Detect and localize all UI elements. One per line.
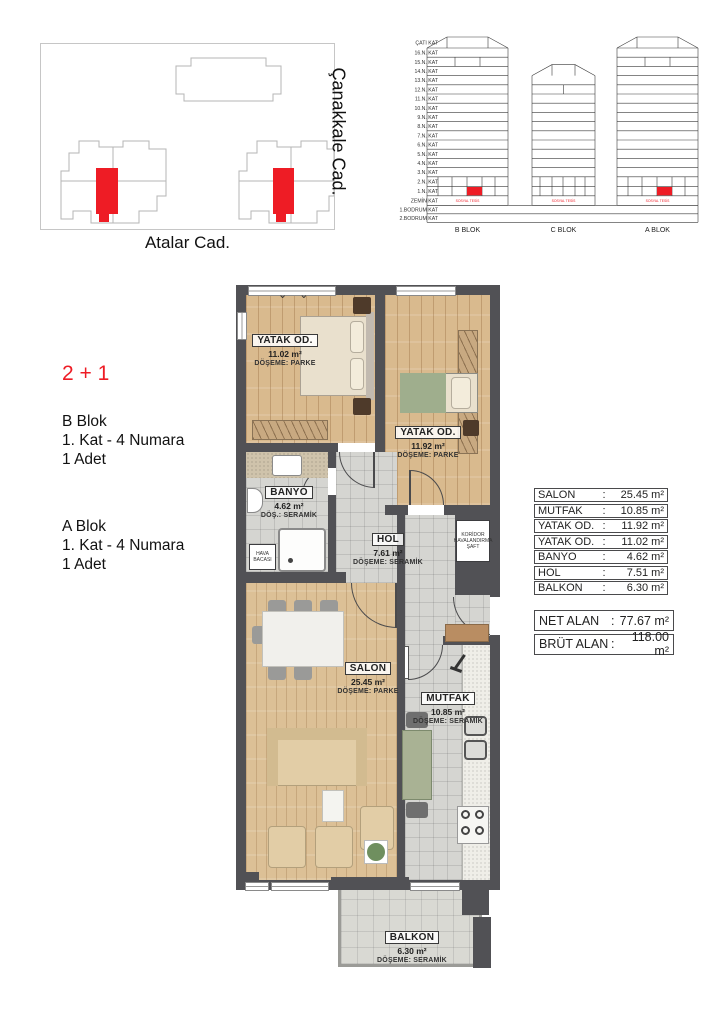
area-row-value: 25.45 m²	[608, 489, 664, 501]
room-label-bedroom2: YATAK OD. 11.92 m² DÖŞEME: PARKE	[383, 426, 473, 459]
area-row-value: 11.92 m²	[608, 520, 664, 532]
area-row-colon: :	[611, 614, 619, 628]
balcony-wall-piece	[473, 917, 491, 968]
area-totals-table: NET ALAN:77.67 m²BRÜT ALAN:118.00 m²	[534, 610, 674, 657]
area-row-value: 10.85 m²	[608, 505, 664, 517]
kitchen-cabinet	[445, 624, 489, 642]
kitchen-sink	[464, 740, 487, 760]
shower-drain	[288, 558, 293, 563]
kitchen-table	[402, 730, 432, 800]
room-label-bedroom1: YATAK OD. 11.02 m² DÖŞEME: PARKE	[240, 334, 330, 367]
area-table-row: HOL:7.51 m²	[534, 566, 668, 580]
wall-bathroom-livingroom	[236, 572, 346, 583]
floorplan-sheet: Atalar Cad. Çanakkale Cad. ÇATI KAT16.N.…	[0, 0, 724, 1024]
sofa-armrest	[356, 728, 367, 786]
area-row-colon: :	[600, 536, 608, 548]
sofa-armrest	[267, 728, 278, 786]
area-row-value: 6.30 m²	[608, 582, 664, 594]
pillow	[350, 321, 364, 353]
area-row-label: BANYO	[538, 551, 600, 563]
wall-right	[490, 285, 500, 890]
area-row-value: 7.51 m²	[608, 567, 664, 579]
area-row-colon: :	[600, 582, 608, 594]
wall-bedroom2-bottom	[444, 505, 490, 515]
area-table-row: BANYO:4.62 m²	[534, 550, 668, 564]
dining-chair	[268, 665, 286, 680]
area-row-colon: :	[600, 489, 608, 501]
plant-leaves	[367, 843, 385, 861]
wall-left	[236, 285, 246, 890]
area-row-label: NET ALAN	[539, 614, 611, 628]
air-shaft: HAVA BACASI	[249, 544, 276, 570]
dining-chair	[294, 665, 312, 680]
area-table-row: BRÜT ALAN:118.00 m²	[534, 634, 674, 655]
stove-burner	[475, 826, 484, 835]
area-table: SALON:25.45 m²MUTFAK:10.85 m²YATAK OD.:1…	[534, 488, 668, 597]
area-row-colon: :	[611, 637, 619, 651]
kitchen-chair	[406, 802, 428, 818]
room-label-livingroom: SALON 25.45 m² DÖŞEME: PARKE	[322, 662, 414, 695]
area-row-colon: :	[600, 520, 608, 532]
dining-table	[262, 611, 344, 667]
area-row-label: YATAK OD.	[538, 536, 600, 548]
bed-blanket	[400, 373, 446, 413]
area-table-row: SALON:25.45 m²	[534, 488, 668, 502]
area-table-row: BALKON:6.30 m²	[534, 581, 668, 595]
nightstand	[353, 297, 371, 314]
area-row-colon: :	[600, 505, 608, 517]
kitchen-counter	[462, 645, 490, 880]
area-row-label: MUTFAK	[538, 505, 600, 517]
stove-burner	[475, 810, 484, 819]
area-row-value: 118.00 m²	[619, 630, 669, 658]
wall-bathroom-right	[328, 495, 336, 583]
room-label-bathroom: BANYO 4.62 m² DÖŞ.: SERAMİK	[249, 486, 329, 519]
door-leaf	[409, 470, 411, 505]
balcony-door-window	[410, 882, 460, 891]
stove-burner	[461, 826, 470, 835]
wall-bedroom1-bottom	[246, 443, 338, 452]
stove-burner	[461, 810, 470, 819]
area-row-label: YATAK OD.	[538, 520, 600, 532]
entry-door-opening	[490, 597, 500, 635]
nightstand	[353, 398, 371, 415]
area-table-row: NET ALAN:77.67 m²	[534, 610, 674, 631]
area-row-value: 77.67 m²	[619, 614, 669, 628]
wall-bathroom-right	[328, 452, 336, 468]
area-table-row: YATAK OD.:11.02 m²	[534, 535, 668, 549]
area-row-colon: :	[600, 567, 608, 579]
area-row-label: BRÜT ALAN	[539, 637, 611, 651]
area-row-value: 11.02 m²	[608, 536, 664, 548]
area-row-value: 4.62 m²	[608, 551, 664, 563]
room-label-hall: HOL 7.61 m² DÖŞEME: SERAMİK	[340, 533, 436, 566]
corridor-ventilation-shaft: KORİDOR HAVALANDIRMA ŞAFT	[456, 520, 490, 562]
armchair	[268, 826, 306, 868]
door-leaf	[373, 452, 375, 488]
window	[396, 286, 456, 296]
bed-headboard	[366, 312, 374, 400]
door-leaf	[395, 583, 397, 628]
window	[245, 882, 269, 891]
area-row-label: HOL	[538, 567, 600, 579]
shower-tray	[278, 528, 326, 572]
area-row-label: BALKON	[538, 582, 600, 594]
window	[271, 882, 329, 891]
curtain-icon: ⌄⌄	[278, 288, 320, 301]
dresser	[252, 420, 328, 440]
coffee-table	[322, 790, 344, 822]
pillow	[350, 358, 364, 390]
armchair	[315, 826, 353, 868]
pillow	[451, 377, 471, 409]
area-table-row: MUTFAK:10.85 m²	[534, 504, 668, 518]
room-label-balcony: BALKON 6.30 m² DÖŞEME: SERAMİK	[366, 931, 458, 964]
wall-bedroom2-bottom	[385, 505, 408, 515]
room-label-kitchen: MUTFAK 10.85 m² DÖŞEME: SERAMİK	[402, 692, 494, 725]
bathroom-sink	[272, 455, 302, 476]
balcony-wall-piece	[462, 886, 489, 915]
area-row-colon: :	[600, 551, 608, 563]
area-row-label: SALON	[538, 489, 600, 501]
sofa-back	[267, 728, 367, 740]
area-table-row: YATAK OD.:11.92 m²	[534, 519, 668, 533]
